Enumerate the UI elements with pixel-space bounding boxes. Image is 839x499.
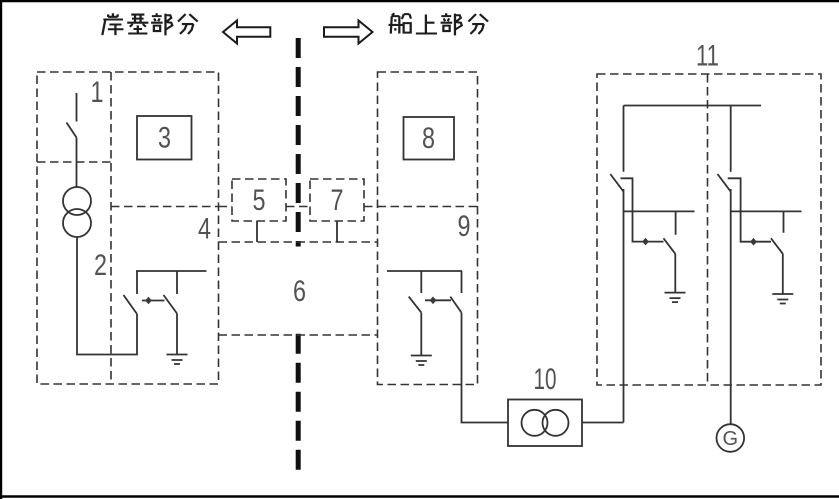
svg-text:6: 6: [293, 275, 306, 308]
svg-text:G: G: [723, 428, 739, 450]
svg-text:1: 1: [91, 76, 104, 109]
svg-text:7: 7: [331, 184, 344, 217]
svg-text:9: 9: [458, 210, 471, 243]
svg-text:5: 5: [253, 184, 266, 217]
svg-text:2: 2: [94, 249, 107, 282]
svg-text:10: 10: [534, 363, 557, 396]
svg-text:8: 8: [422, 122, 435, 155]
svg-text:3: 3: [158, 122, 171, 155]
svg-text:11: 11: [696, 40, 719, 73]
svg-text:4: 4: [198, 213, 211, 246]
